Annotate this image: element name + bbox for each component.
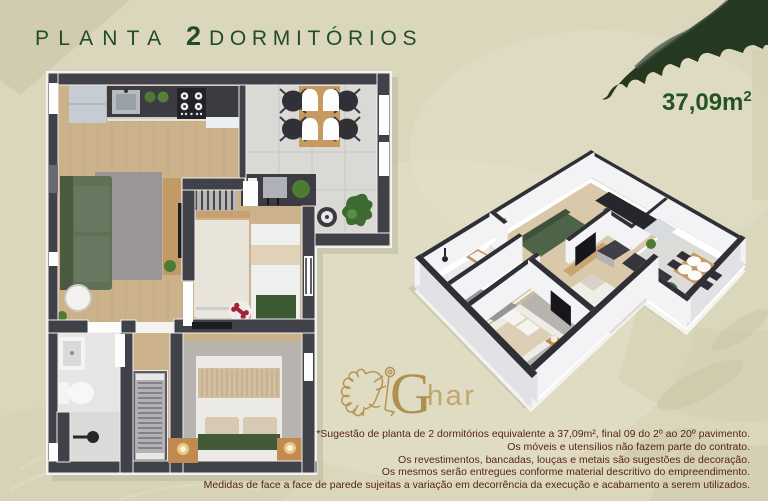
svg-text:37,09m2: 37,09m2 <box>662 88 752 116</box>
svg-text:Os revestimentos, bancadas, lo: Os revestimentos, bancadas, louças e met… <box>398 454 750 466</box>
svg-text:har: har <box>427 380 476 412</box>
svg-text:Os mesmos serão entregues conf: Os mesmos serão entregues conforme mater… <box>382 466 750 478</box>
svg-text:2: 2 <box>186 21 201 51</box>
svg-text:Medidas de face a face de pare: Medidas de face a face de parede sujeita… <box>204 479 750 491</box>
svg-text:PLANTA: PLANTA <box>35 27 170 50</box>
svg-text:Os móveis e utensílios não faz: Os móveis e utensílios não fazem parte d… <box>507 441 750 453</box>
svg-text:G: G <box>390 361 432 426</box>
svg-text:*Sugestão de planta de 2 dormi: *Sugestão de planta de 2 dormitórios equ… <box>316 428 750 440</box>
svg-text:DORMITÓRIOS: DORMITÓRIOS <box>209 27 422 50</box>
